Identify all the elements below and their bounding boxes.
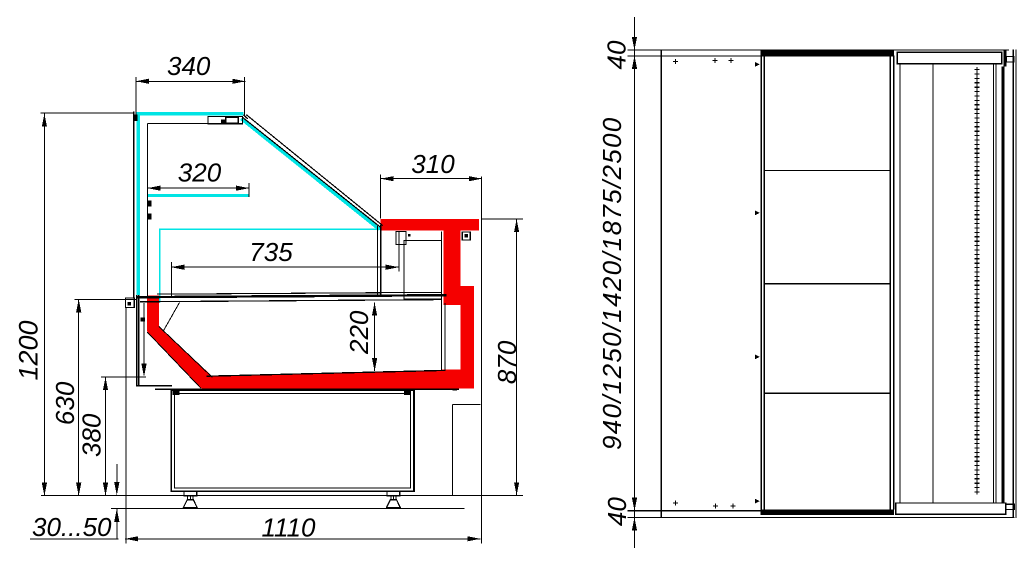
svg-text:735: 735 xyxy=(249,237,293,267)
svg-text:320: 320 xyxy=(178,158,222,188)
svg-text:1200: 1200 xyxy=(14,320,44,380)
svg-text:380: 380 xyxy=(77,413,107,457)
svg-text:40: 40 xyxy=(602,40,632,69)
svg-text:1110: 1110 xyxy=(262,513,317,543)
svg-text:220: 220 xyxy=(344,310,374,355)
svg-text:310: 310 xyxy=(411,149,455,179)
svg-text:40: 40 xyxy=(602,497,632,526)
svg-text:940/1250/1420/1875/2500: 940/1250/1420/1875/2500 xyxy=(597,116,627,450)
svg-text:870: 870 xyxy=(492,340,522,384)
svg-text:30...50: 30...50 xyxy=(32,512,112,542)
svg-text:630: 630 xyxy=(50,381,80,425)
svg-text:340: 340 xyxy=(167,51,211,81)
